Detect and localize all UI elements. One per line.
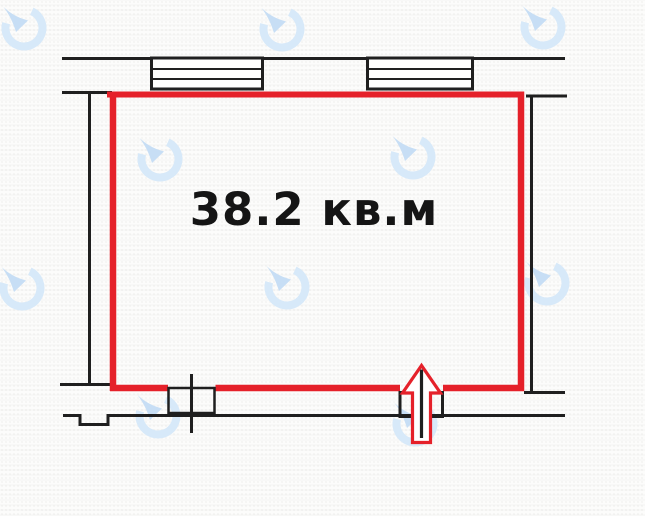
room-outline xyxy=(107,92,524,392)
room-area-label: 38.2 кв.м xyxy=(190,187,439,232)
left-wall xyxy=(60,93,113,386)
bottom-corridor-wall xyxy=(63,416,565,425)
window-1 xyxy=(152,58,263,89)
entrance xyxy=(400,366,443,443)
wall-fixture xyxy=(169,374,215,433)
floor-plan-page: 38.2 кв.м xyxy=(0,0,645,516)
right-wall xyxy=(524,96,567,393)
window-2 xyxy=(368,58,473,89)
floor-plan-drawing xyxy=(0,0,645,516)
